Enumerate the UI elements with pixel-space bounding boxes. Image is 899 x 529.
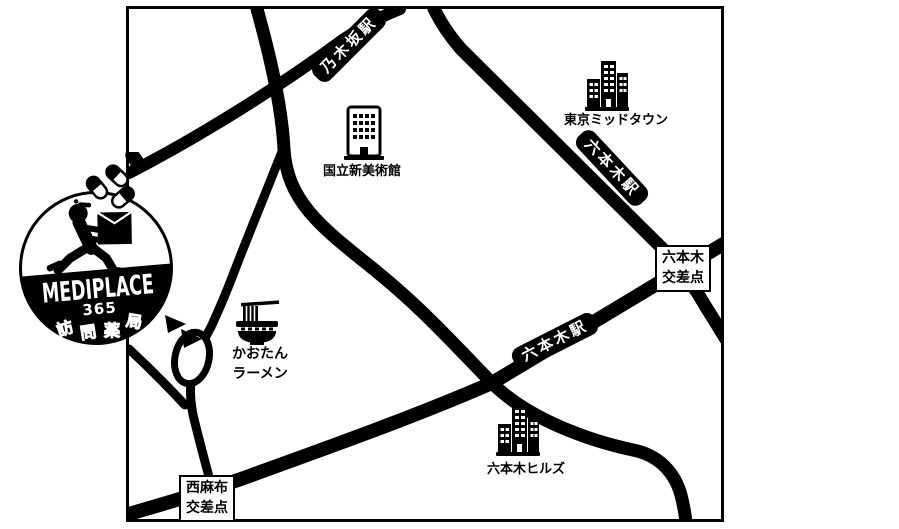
place-label-tokyo-midtown: 東京ミッドタウン (564, 109, 668, 128)
svg-text:局: 局 (125, 311, 144, 332)
crossing-line1: 西麻布 (186, 479, 228, 499)
ramen-icon (233, 299, 281, 345)
mediplace-logo: MEDIPLACE 365 訪 問 薬 局 (12, 152, 188, 352)
ramen-line2: ラーメン (232, 365, 288, 385)
logo-number-text: 365 (82, 298, 118, 319)
access-map-canvas: 乃木坂駅 六本木駅 六本木駅 六本木 交差点 西麻布 交差点 (0, 0, 899, 529)
place-label-kaotan-ramen: かおたん ラーメン (232, 345, 288, 384)
buildings-icon (585, 59, 629, 111)
svg-text:薬: 薬 (103, 321, 121, 340)
place-label-art-center: 国立新美術館 (323, 160, 401, 179)
road-gaien-higashi (434, 9, 721, 346)
ramen-line1: かおたん (232, 345, 288, 365)
road-network (129, 9, 721, 519)
buildings-icon (496, 404, 540, 456)
crossing-line2: 交差点 (186, 499, 228, 519)
crossing-line1: 六本木 (662, 249, 704, 269)
building-icon (344, 105, 384, 161)
place-label-roppongi-hills: 六本木ヒルズ (487, 458, 565, 477)
nishiazabu-crossing-box: 西麻布 交差点 (179, 475, 235, 522)
road-roppongi-dori (129, 240, 721, 515)
roppongi-crossing-box: 六本木 交差点 (655, 245, 711, 292)
crossing-line2: 交差点 (662, 269, 704, 289)
svg-text:問: 問 (79, 322, 98, 343)
map-area: 乃木坂駅 六本木駅 六本木駅 六本木 交差点 西麻布 交差点 (126, 6, 724, 522)
